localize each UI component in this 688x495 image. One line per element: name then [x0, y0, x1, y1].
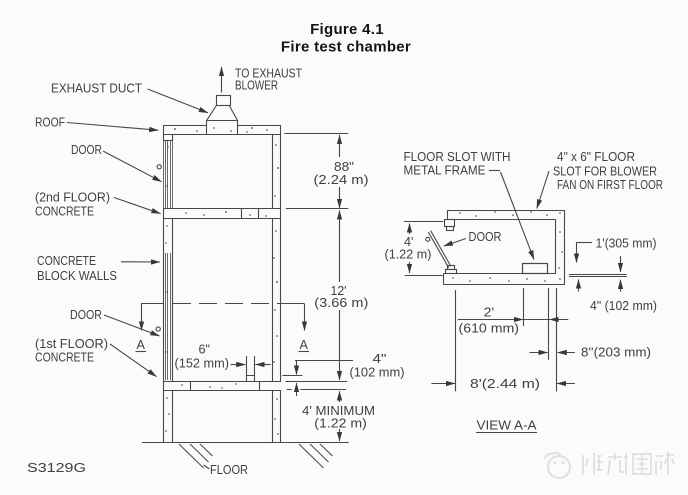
svg-text:FLOOR SLOT WITH: FLOOR SLOT WITH	[404, 150, 511, 164]
svg-text:(152 mm): (152 mm)	[175, 357, 230, 371]
svg-text:CONCRETE: CONCRETE	[35, 351, 94, 365]
svg-text:88": 88"	[334, 160, 354, 174]
svg-text:2': 2'	[484, 306, 495, 320]
svg-text:(2.24 m): (2.24 m)	[314, 173, 369, 187]
svg-text:(2nd FLOOR): (2nd FLOOR)	[35, 191, 110, 205]
svg-text:Figure 4.1: Figure 4.1	[310, 21, 384, 38]
svg-text:BLOCK WALLS: BLOCK WALLS	[37, 269, 117, 283]
svg-text:1'(305 mm): 1'(305 mm)	[596, 237, 657, 251]
svg-text:METAL FRAME: METAL FRAME	[404, 164, 486, 178]
svg-text:S3129G: S3129G	[27, 461, 86, 475]
svg-text:A: A	[137, 338, 146, 352]
svg-text:DOOR: DOOR	[70, 308, 102, 322]
svg-text:(1st FLOOR): (1st FLOOR)	[35, 337, 108, 351]
svg-text:(1.22 m): (1.22 m)	[385, 248, 432, 262]
svg-text:CONCRETE: CONCRETE	[37, 254, 96, 268]
svg-text:BLOWER: BLOWER	[235, 79, 278, 93]
svg-text:4" x 6" FLOOR: 4" x 6" FLOOR	[557, 150, 635, 164]
svg-text:CONCRETE: CONCRETE	[35, 205, 94, 219]
svg-text:(1.22 m): (1.22 m)	[314, 417, 367, 431]
svg-text:ROOF: ROOF	[35, 116, 65, 130]
svg-text:6": 6"	[199, 343, 211, 357]
svg-text:4": 4"	[373, 352, 387, 366]
svg-text:DOOR: DOOR	[469, 230, 502, 244]
svg-text:Fire test chamber: Fire test chamber	[281, 39, 411, 56]
svg-text:DOOR: DOOR	[71, 143, 102, 157]
svg-text:FLOOR: FLOOR	[210, 463, 248, 477]
svg-text:(610 mm): (610 mm)	[459, 322, 520, 336]
svg-text:(3.66 m): (3.66 m)	[314, 296, 368, 310]
svg-text:8''(203 mm): 8''(203 mm)	[581, 346, 651, 360]
svg-text:EXHAUST DUCT: EXHAUST DUCT	[51, 82, 142, 96]
svg-text:A: A	[300, 338, 309, 352]
svg-text:VIEW A-A: VIEW A-A	[477, 419, 538, 433]
svg-text:FAN ON FIRST FLOOR: FAN ON FIRST FLOOR	[557, 178, 663, 192]
svg-text:8'(2.44 m): 8'(2.44 m)	[470, 377, 540, 391]
svg-text:(102 mm): (102 mm)	[350, 366, 405, 380]
svg-text:SLOT FOR BLOWER: SLOT FOR BLOWER	[553, 165, 657, 179]
svg-text:4" (102 mm): 4" (102 mm)	[590, 299, 657, 313]
